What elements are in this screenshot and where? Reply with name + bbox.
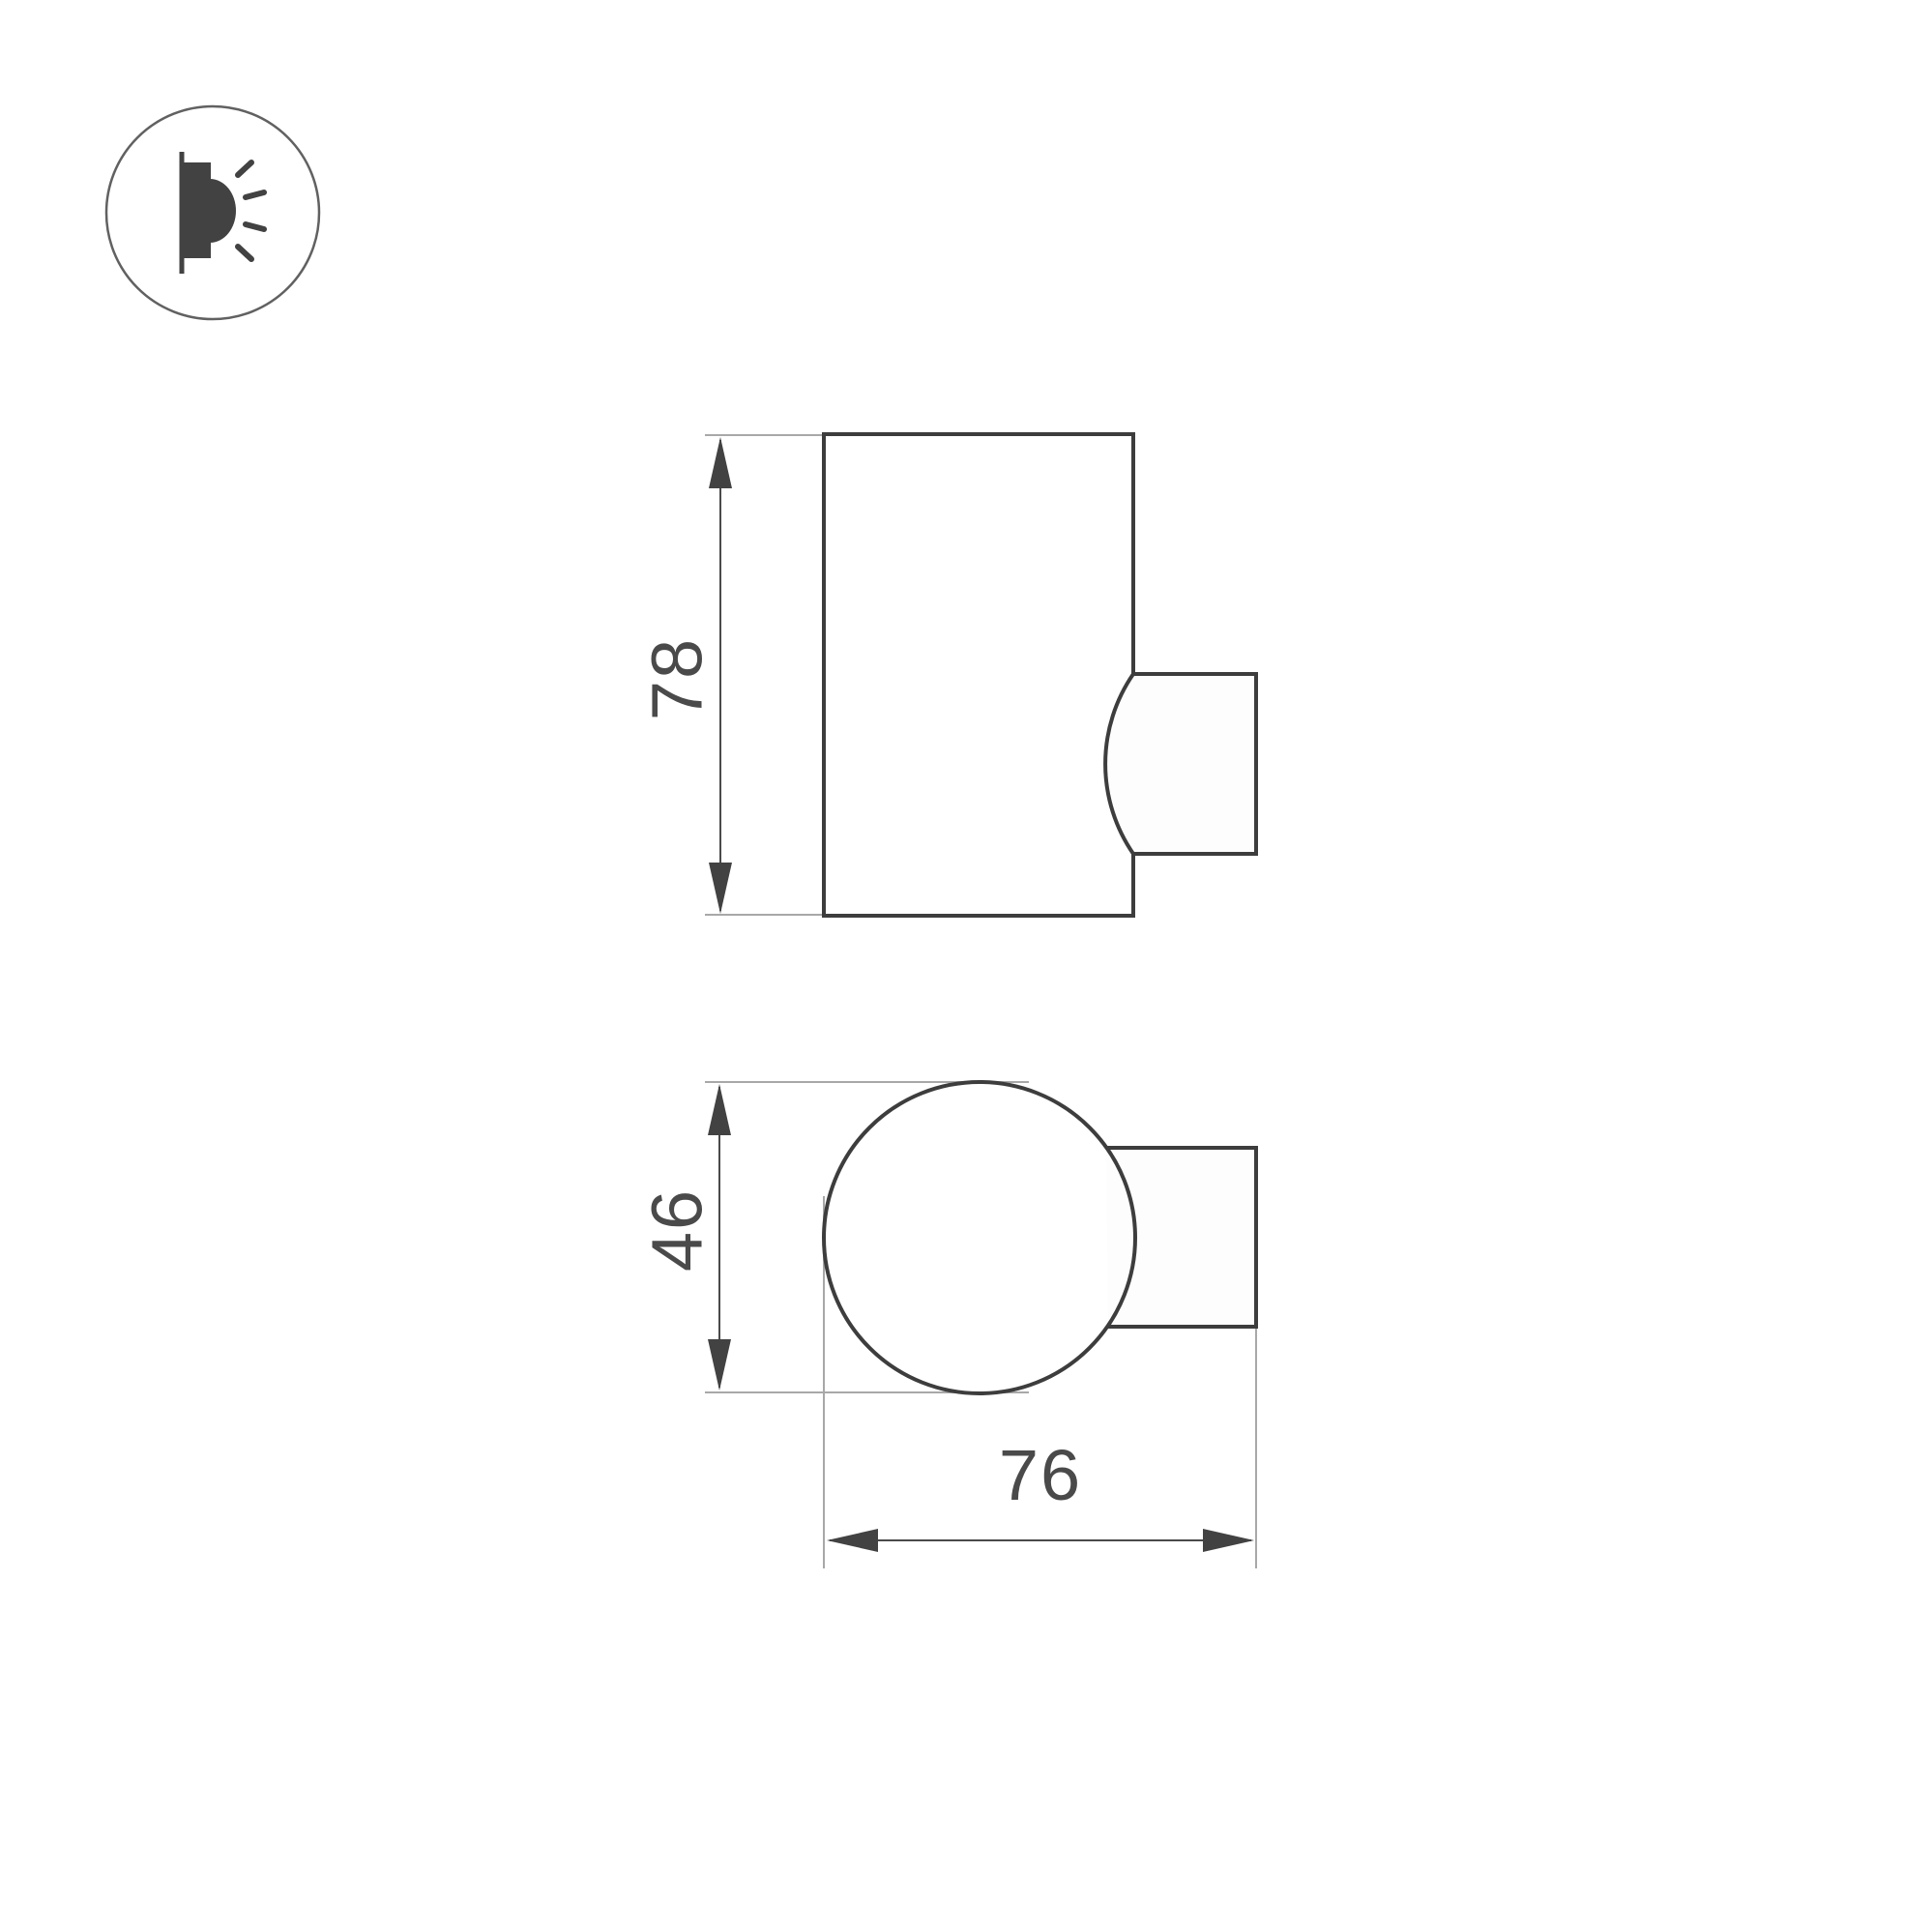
arrowhead-up bbox=[708, 1084, 731, 1135]
arrowhead-up bbox=[709, 437, 732, 488]
top-view: 46 76 bbox=[637, 1082, 1257, 1568]
wall-light-icon bbox=[106, 106, 319, 319]
side-view: 78 bbox=[637, 434, 1257, 916]
diameter-dimension-label: 46 bbox=[637, 1188, 717, 1272]
luminaire-body-outline bbox=[824, 434, 1133, 916]
arrowhead-down bbox=[708, 1339, 731, 1390]
arrowhead-down bbox=[709, 863, 732, 914]
arrowhead-left bbox=[827, 1529, 878, 1552]
arrowhead-right bbox=[1203, 1529, 1254, 1552]
technical-drawing-page: 78 46 76 bbox=[0, 0, 1932, 1932]
dimension-drawing-svg: 78 46 76 bbox=[0, 0, 1932, 1932]
wall-mount-outline bbox=[1105, 674, 1256, 854]
luminaire-round-body bbox=[824, 1082, 1135, 1393]
icon-fixture-body bbox=[184, 162, 211, 258]
height-dimension-label: 78 bbox=[637, 637, 717, 720]
wall-mount-top-outline bbox=[1106, 1148, 1256, 1327]
depth-dimension-label: 76 bbox=[999, 1435, 1082, 1515]
